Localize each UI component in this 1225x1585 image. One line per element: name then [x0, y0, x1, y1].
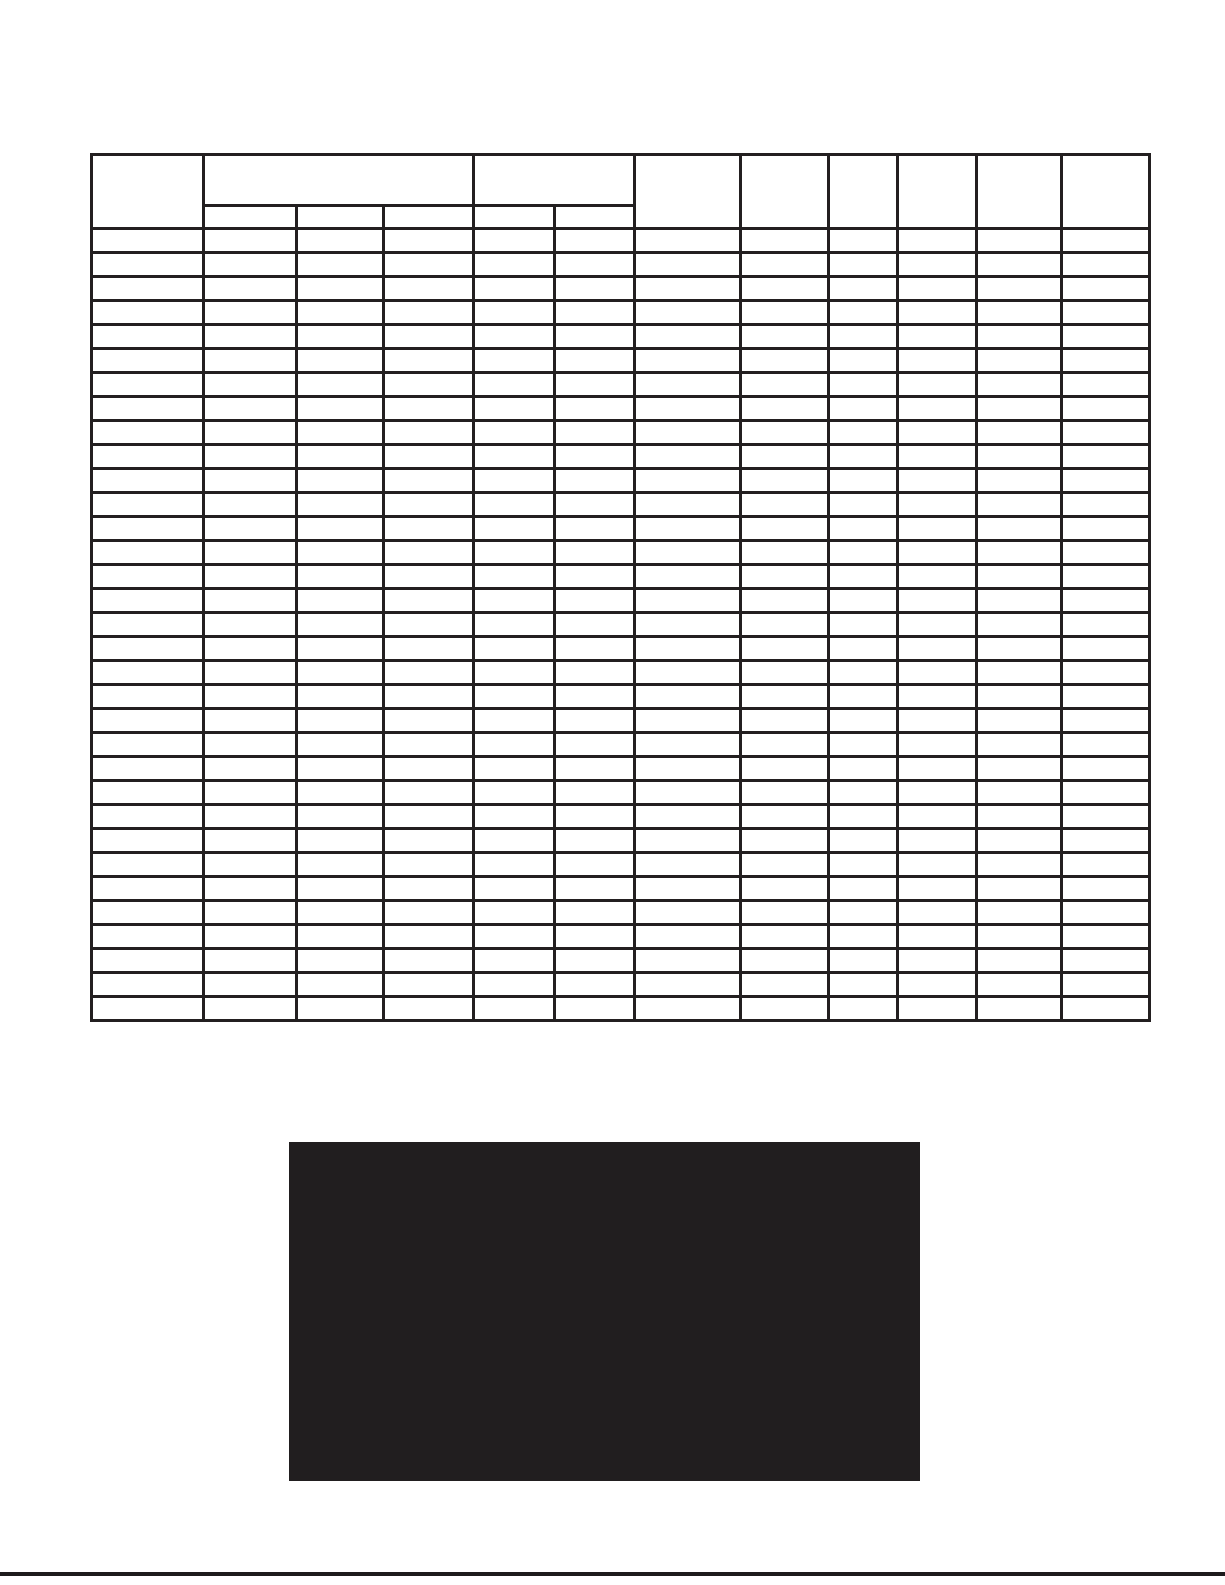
table-cell: [384, 325, 474, 349]
table-cell: [829, 349, 898, 373]
table-cell: [297, 685, 384, 709]
table-cell: [898, 469, 977, 493]
table-cell: [977, 589, 1062, 613]
table-cell: [635, 853, 741, 877]
table-cell: [92, 325, 204, 349]
table-cell: [635, 349, 741, 373]
table-cell: [92, 805, 204, 829]
table-cell: [92, 757, 204, 781]
table-cell: [635, 373, 741, 397]
table-cell: [635, 997, 741, 1021]
table-cell: [1062, 973, 1150, 997]
table-cell: [92, 589, 204, 613]
table-cell: [1062, 373, 1150, 397]
table-row: [92, 493, 1150, 517]
table-cell: [635, 253, 741, 277]
table-cell: [204, 781, 297, 805]
table-cell: [555, 517, 635, 541]
table-cell: [474, 709, 555, 733]
table-row: [92, 757, 1150, 781]
table-cell: [92, 397, 204, 421]
table-cell: [829, 301, 898, 325]
table-cell: [474, 973, 555, 997]
table-cell: [297, 877, 384, 901]
table-cell: [204, 637, 297, 661]
table-cell: [297, 805, 384, 829]
table-cell: [384, 541, 474, 565]
table-cell: [474, 541, 555, 565]
table-cell: [204, 757, 297, 781]
table-row: [92, 973, 1150, 997]
table-row: [92, 445, 1150, 469]
table-cell: [204, 709, 297, 733]
table-cell: [898, 757, 977, 781]
table-cell: [384, 589, 474, 613]
table-row: [92, 709, 1150, 733]
table-cell: [741, 253, 829, 277]
table-cell: [555, 949, 635, 973]
table-cell: [204, 685, 297, 709]
table-cell: [898, 829, 977, 853]
table-cell: [635, 397, 741, 421]
table-cell: [297, 709, 384, 733]
table-cell: [898, 925, 977, 949]
table-cell: [741, 349, 829, 373]
table-cell: [555, 661, 635, 685]
table-cell: [555, 589, 635, 613]
table-cell: [92, 517, 204, 541]
corner-header-cell: [92, 155, 204, 229]
table-cell: [977, 349, 1062, 373]
table-row: [92, 613, 1150, 637]
table-cell: [635, 829, 741, 853]
table-cell: [474, 901, 555, 925]
table-cell: [977, 757, 1062, 781]
table-body: [92, 229, 1150, 1021]
table-cell: [297, 781, 384, 805]
table-cell: [92, 949, 204, 973]
table-cell: [474, 253, 555, 277]
table-cell: [474, 325, 555, 349]
table-cell: [204, 613, 297, 637]
table-cell: [829, 373, 898, 397]
table-cell: [555, 733, 635, 757]
table-cell: [829, 637, 898, 661]
table-cell: [1062, 661, 1150, 685]
table-cell: [977, 709, 1062, 733]
table-cell: [829, 469, 898, 493]
table-cell: [829, 277, 898, 301]
table-cell: [741, 373, 829, 397]
table-cell: [92, 973, 204, 997]
table-cell: [741, 613, 829, 637]
table-cell: [829, 589, 898, 613]
table-row: [92, 373, 1150, 397]
table-cell: [474, 373, 555, 397]
table-cell: [474, 685, 555, 709]
table-cell: [1062, 397, 1150, 421]
table-cell: [741, 733, 829, 757]
table-cell: [555, 757, 635, 781]
table-cell: [204, 541, 297, 565]
table-cell: [297, 373, 384, 397]
page-bottom-rule: [0, 1572, 1225, 1576]
table-cell: [384, 421, 474, 445]
table-cell: [977, 253, 1062, 277]
table-cell: [1062, 637, 1150, 661]
table-cell: [829, 661, 898, 685]
table-cell: [898, 877, 977, 901]
table-cell: [204, 949, 297, 973]
table-cell: [635, 925, 741, 949]
table-cell: [898, 637, 977, 661]
table-cell: [92, 733, 204, 757]
table-cell: [204, 925, 297, 949]
table-cell: [635, 541, 741, 565]
table-row: [92, 301, 1150, 325]
header-top-row: [92, 155, 1150, 206]
table-cell: [635, 733, 741, 757]
table-cell: [741, 325, 829, 349]
table-cell: [555, 277, 635, 301]
table-row: [92, 805, 1150, 829]
table-cell: [898, 349, 977, 373]
table-cell: [829, 493, 898, 517]
table-cell: [1062, 829, 1150, 853]
table-cell: [829, 229, 898, 253]
table-cell: [829, 997, 898, 1021]
table-cell: [977, 637, 1062, 661]
table-cell: [1062, 517, 1150, 541]
table-cell: [741, 469, 829, 493]
table-cell: [92, 493, 204, 517]
table-row: [92, 229, 1150, 253]
table-cell: [384, 685, 474, 709]
table-row: [92, 517, 1150, 541]
table-cell: [829, 925, 898, 949]
table-cell: [977, 805, 1062, 829]
table-cell: [474, 949, 555, 973]
subheader-cell: [474, 206, 555, 229]
table-cell: [555, 997, 635, 1021]
table-cell: [635, 661, 741, 685]
table-cell: [384, 469, 474, 493]
table-cell: [741, 229, 829, 253]
table-cell: [297, 397, 384, 421]
table-row: [92, 829, 1150, 853]
table-cell: [384, 757, 474, 781]
table-cell: [635, 805, 741, 829]
subheader-cell: [204, 206, 297, 229]
table-cell: [204, 877, 297, 901]
table-cell: [204, 493, 297, 517]
table-cell: [92, 613, 204, 637]
table-cell: [384, 949, 474, 973]
table-row: [92, 877, 1150, 901]
table-cell: [297, 997, 384, 1021]
table-cell: [898, 709, 977, 733]
table-cell: [898, 949, 977, 973]
table-cell: [474, 661, 555, 685]
table-cell: [741, 661, 829, 685]
table-row: [92, 661, 1150, 685]
table-cell: [204, 421, 297, 445]
table-cell: [977, 781, 1062, 805]
table-cell: [92, 637, 204, 661]
table-cell: [297, 517, 384, 541]
table-cell: [204, 565, 297, 589]
table-cell: [204, 253, 297, 277]
table-cell: [384, 637, 474, 661]
table-cell: [384, 349, 474, 373]
table-cell: [92, 229, 204, 253]
table-cell: [204, 517, 297, 541]
table-cell: [92, 829, 204, 853]
table-cell: [297, 733, 384, 757]
table-cell: [92, 781, 204, 805]
table-cell: [92, 853, 204, 877]
table-cell: [297, 613, 384, 637]
table-cell: [92, 277, 204, 301]
table-cell: [635, 685, 741, 709]
table-cell: [297, 445, 384, 469]
table-cell: [474, 997, 555, 1021]
table-cell: [977, 541, 1062, 565]
table-cell: [898, 685, 977, 709]
table-cell: [741, 565, 829, 589]
table-cell: [555, 973, 635, 997]
table-cell: [635, 757, 741, 781]
table-cell: [204, 853, 297, 877]
table-cell: [92, 901, 204, 925]
subheader-cell: [384, 206, 474, 229]
table-cell: [829, 877, 898, 901]
table-cell: [92, 373, 204, 397]
table-cell: [898, 613, 977, 637]
table-cell: [635, 877, 741, 901]
table-cell: [204, 829, 297, 853]
redaction-block: [289, 1142, 920, 1481]
table-cell: [384, 925, 474, 949]
table-cell: [829, 829, 898, 853]
table-cell: [384, 781, 474, 805]
table-cell: [474, 829, 555, 853]
table-cell: [977, 277, 1062, 301]
table-cell: [741, 421, 829, 445]
table-cell: [384, 445, 474, 469]
table-cell: [898, 805, 977, 829]
table-cell: [977, 685, 1062, 709]
table-cell: [1062, 709, 1150, 733]
table-cell: [741, 805, 829, 829]
table-cell: [977, 469, 1062, 493]
table-cell: [474, 445, 555, 469]
table-cell: [635, 613, 741, 637]
table-cell: [555, 397, 635, 421]
table-cell: [384, 805, 474, 829]
table-cell: [741, 973, 829, 997]
table-cell: [829, 973, 898, 997]
table-cell: [635, 949, 741, 973]
table-cell: [204, 589, 297, 613]
tall-header-cell: [741, 155, 829, 229]
table-cell: [204, 325, 297, 349]
table-cell: [204, 277, 297, 301]
table-cell: [474, 565, 555, 589]
table-cell: [635, 781, 741, 805]
tall-header-cell: [1062, 155, 1150, 229]
table-cell: [635, 301, 741, 325]
table-row: [92, 277, 1150, 301]
table-cell: [474, 229, 555, 253]
table-cell: [977, 661, 1062, 685]
table-cell: [384, 229, 474, 253]
table-cell: [555, 685, 635, 709]
table-cell: [384, 613, 474, 637]
table-cell: [204, 373, 297, 397]
table-cell: [297, 469, 384, 493]
table-cell: [92, 661, 204, 685]
table-cell: [204, 397, 297, 421]
table-cell: [829, 541, 898, 565]
table-cell: [741, 997, 829, 1021]
table-cell: [635, 517, 741, 541]
table-cell: [829, 565, 898, 589]
table-cell: [297, 541, 384, 565]
table-row: [92, 349, 1150, 373]
table-cell: [1062, 949, 1150, 973]
table-cell: [92, 301, 204, 325]
table-cell: [1062, 997, 1150, 1021]
table-cell: [555, 613, 635, 637]
table-cell: [474, 301, 555, 325]
table-cell: [741, 877, 829, 901]
table-row: [92, 685, 1150, 709]
table-cell: [829, 901, 898, 925]
table-cell: [898, 493, 977, 517]
table-cell: [741, 757, 829, 781]
table-cell: [977, 445, 1062, 469]
table-header: [92, 155, 1150, 229]
table-cell: [297, 325, 384, 349]
merged-header-group-1: [204, 155, 474, 206]
table-cell: [474, 277, 555, 301]
table-cell: [384, 829, 474, 853]
table-cell: [204, 661, 297, 685]
table-row: [92, 541, 1150, 565]
table-cell: [1062, 253, 1150, 277]
table-cell: [635, 277, 741, 301]
table-cell: [474, 469, 555, 493]
table-cell: [741, 445, 829, 469]
table-cell: [297, 661, 384, 685]
table-cell: [297, 637, 384, 661]
table-cell: [555, 349, 635, 373]
table-cell: [829, 421, 898, 445]
table-cell: [977, 397, 1062, 421]
table-cell: [1062, 757, 1150, 781]
table-row: [92, 565, 1150, 589]
table-cell: [898, 445, 977, 469]
table-cell: [898, 901, 977, 925]
table-cell: [977, 493, 1062, 517]
table-cell: [555, 421, 635, 445]
table-cell: [741, 397, 829, 421]
table-cell: [898, 853, 977, 877]
table-cell: [977, 973, 1062, 997]
table-cell: [829, 949, 898, 973]
table-cell: [977, 829, 1062, 853]
table-cell: [204, 445, 297, 469]
table-cell: [555, 877, 635, 901]
table-cell: [555, 253, 635, 277]
table-cell: [829, 757, 898, 781]
table-cell: [297, 973, 384, 997]
table-cell: [977, 949, 1062, 973]
table-cell: [741, 637, 829, 661]
table-cell: [555, 373, 635, 397]
table-row: [92, 853, 1150, 877]
table-cell: [741, 277, 829, 301]
table-cell: [297, 901, 384, 925]
table-cell: [977, 301, 1062, 325]
table-cell: [898, 277, 977, 301]
table-row: [92, 325, 1150, 349]
table-cell: [555, 853, 635, 877]
table-cell: [829, 517, 898, 541]
table-cell: [474, 853, 555, 877]
table-cell: [1062, 733, 1150, 757]
table-cell: [898, 589, 977, 613]
table-cell: [204, 733, 297, 757]
table-cell: [977, 421, 1062, 445]
table-cell: [829, 325, 898, 349]
table-cell: [898, 661, 977, 685]
blank-form-table: [90, 153, 1151, 1022]
table-cell: [474, 733, 555, 757]
table-cell: [297, 853, 384, 877]
table-cell: [297, 589, 384, 613]
table-cell: [1062, 469, 1150, 493]
table-cell: [1062, 325, 1150, 349]
table-cell: [1062, 565, 1150, 589]
table-cell: [829, 397, 898, 421]
table-cell: [1062, 925, 1150, 949]
table-cell: [555, 301, 635, 325]
table-cell: [555, 901, 635, 925]
table-cell: [384, 493, 474, 517]
table-cell: [474, 517, 555, 541]
table-cell: [829, 685, 898, 709]
table-cell: [898, 733, 977, 757]
table-cell: [204, 229, 297, 253]
table-cell: [384, 733, 474, 757]
table-cell: [297, 229, 384, 253]
table-cell: [977, 925, 1062, 949]
table-cell: [635, 469, 741, 493]
table-cell: [1062, 301, 1150, 325]
table-cell: [92, 445, 204, 469]
table-cell: [474, 589, 555, 613]
table-cell: [898, 397, 977, 421]
table-cell: [829, 733, 898, 757]
table-cell: [898, 373, 977, 397]
table-cell: [555, 493, 635, 517]
table-cell: [92, 877, 204, 901]
table-row: [92, 397, 1150, 421]
table-cell: [977, 229, 1062, 253]
table-cell: [635, 229, 741, 253]
